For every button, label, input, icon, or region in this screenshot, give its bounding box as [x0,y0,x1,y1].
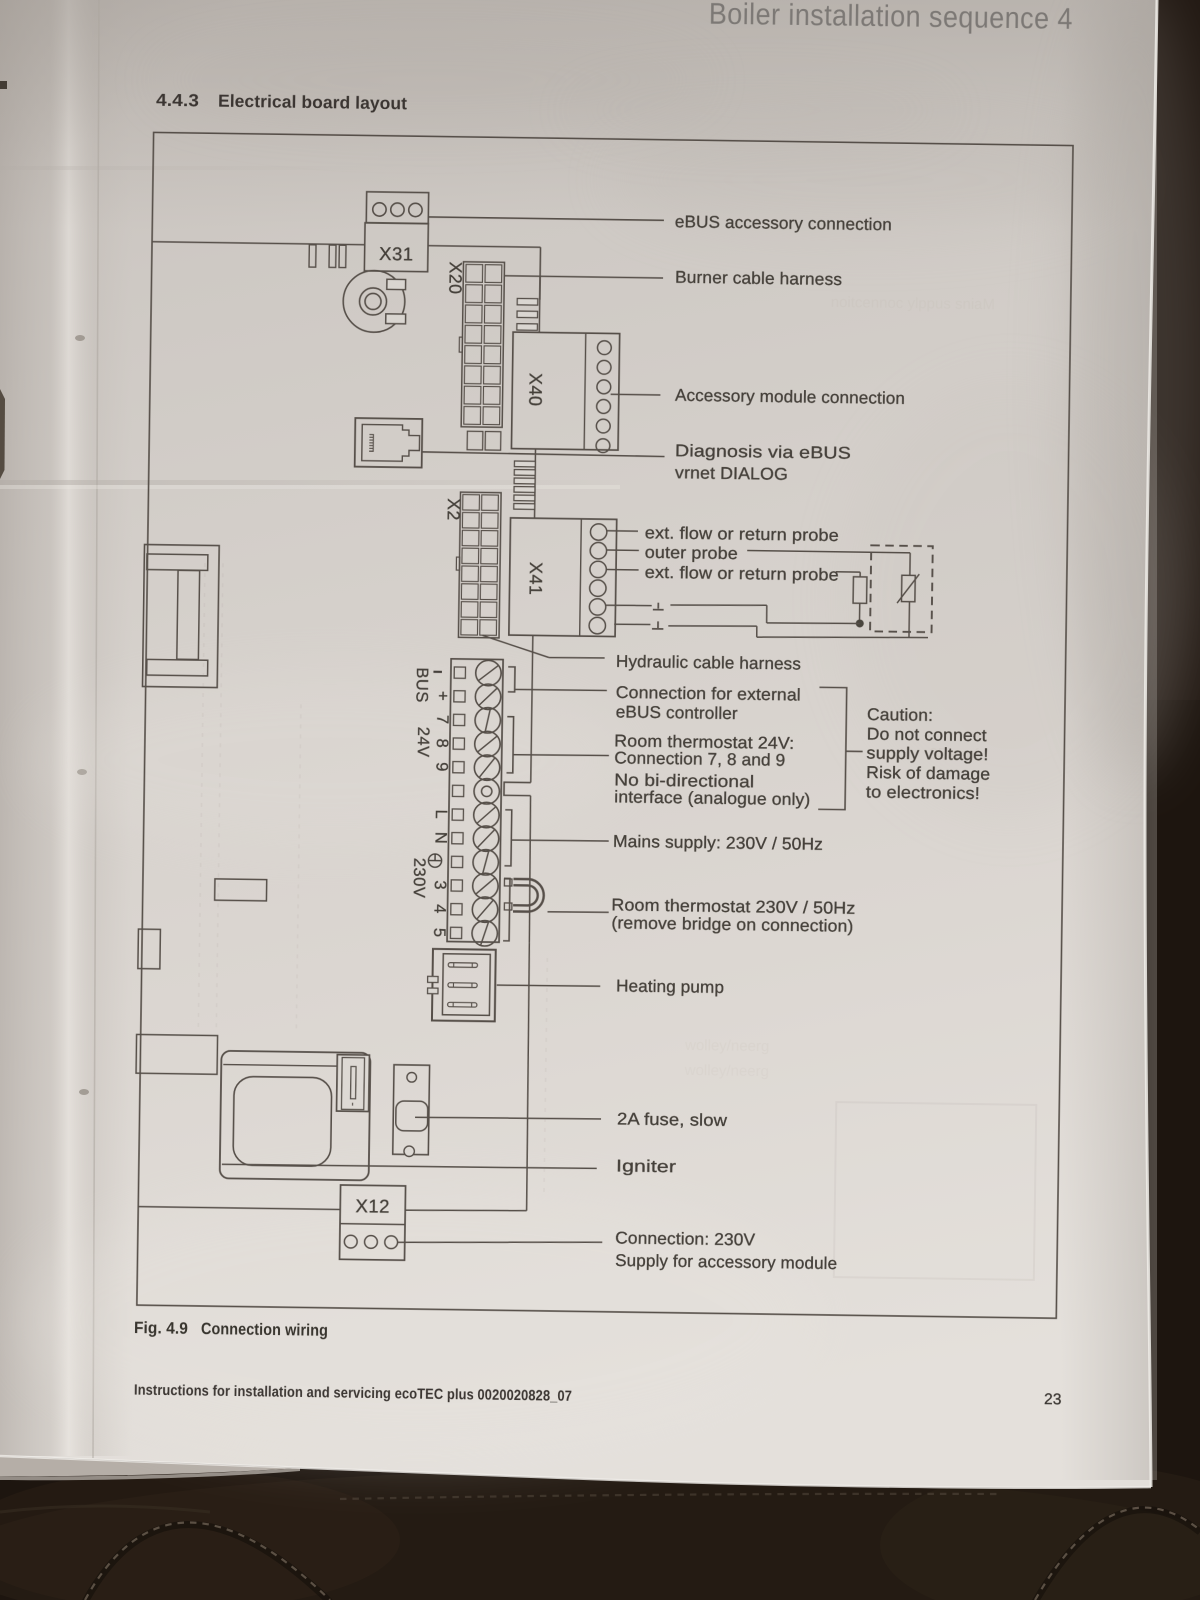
svg-text:+: + [433,691,451,701]
svg-text:ext. flow or return probe: ext. flow or return probe [645,563,839,585]
svg-text:23: 23 [1044,1391,1062,1408]
svg-text:Diagnosis via eBUS: Diagnosis via eBUS [675,441,851,463]
svg-text:4: 4 [430,904,448,914]
svg-text:Do not connect: Do not connect [867,724,987,745]
svg-text:interface (analogue only): interface (analogue only) [614,787,810,809]
svg-text:35 esuf: 35 esuf [929,745,979,763]
svg-text:Electrical board layout: Electrical board layout [218,91,407,114]
svg-text:Caution:: Caution: [867,705,933,725]
svg-text:wolley/neerg: wolley/neerg [684,1037,769,1055]
svg-text:Supply for accessory module: Supply for accessory module [615,1251,837,1273]
svg-text:5: 5 [430,928,448,938]
svg-text:X31: X31 [379,243,414,264]
svg-text:Burner cable harness: Burner cable harness [675,268,842,289]
svg-text:Connection wiring: Connection wiring [201,1320,328,1340]
svg-text:4.4.3: 4.4.3 [156,90,199,111]
svg-text:X2: X2 [444,498,464,521]
svg-text:BUS: BUS [412,667,431,703]
svg-text:Mains supply: 230V / 50Hz: Mains supply: 230V / 50Hz [613,832,823,854]
svg-text:(remove bridge on connection): (remove bridge on connection) [611,913,853,935]
svg-text:Boiler installation sequence 4: Boiler installation sequence 4 [709,0,1073,36]
svg-text:Connection 7, 8 and 9: Connection 7, 8 and 9 [614,748,785,769]
svg-text:230V: 230V [410,858,429,899]
svg-text:vrnet DIALOG: vrnet DIALOG [675,463,788,484]
svg-text:9: 9 [432,762,450,772]
svg-text:Heating pump: Heating pump [616,976,724,997]
svg-text:Risk of damage: Risk of damage [866,763,990,784]
svg-text:2A fuse, slow: 2A fuse, slow [617,1109,728,1130]
svg-text:L: L [432,809,450,819]
svg-text:X12: X12 [355,1195,390,1216]
svg-text:eBUS accessory connection: eBUS accessory connection [675,212,892,234]
svg-text:Connection: 230V: Connection: 230V [615,1228,756,1249]
svg-text:8: 8 [433,738,451,748]
svg-text:X41: X41 [526,562,546,596]
svg-text:outer probe: outer probe [645,543,738,563]
svg-text:24V: 24V [414,727,432,758]
svg-text:Hydraulic cable harness: Hydraulic cable harness [616,652,801,674]
svg-text:Fig. 4.9: Fig. 4.9 [134,1319,188,1338]
svg-text:to electronics!: to electronics! [866,782,980,803]
svg-text:X20: X20 [445,262,465,295]
svg-text:3: 3 [431,880,449,890]
svg-text:Accessory module connection: Accessory module connection [675,386,905,408]
svg-text:7: 7 [433,715,451,725]
svg-text:wolley/neerg: wolley/neerg [684,1062,769,1080]
svg-text:ext. flow or return probe: ext. flow or return probe [645,523,839,545]
svg-text:noitcennoc ylppus sniaM: noitcennoc ylppus sniaM [831,294,995,313]
svg-text:Igniter: Igniter [616,1156,677,1176]
svg-text:N: N [431,832,449,845]
svg-text:eBUS controller: eBUS controller [616,702,738,723]
svg-text:Connection for external: Connection for external [616,683,801,705]
svg-text:X40: X40 [525,373,545,407]
